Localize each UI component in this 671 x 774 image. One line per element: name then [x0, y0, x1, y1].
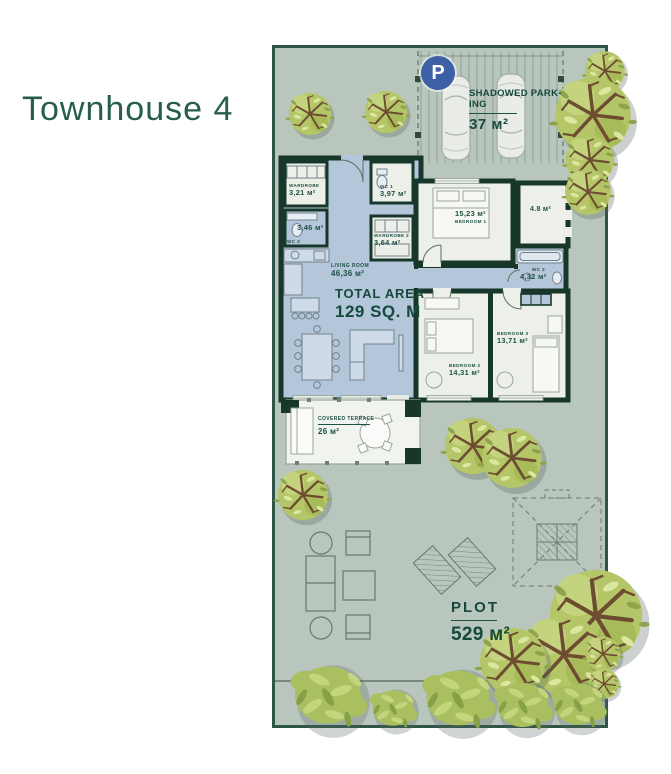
- parking-area-value: 37 м²: [469, 116, 562, 134]
- room-label-wc1: WC 1 3,97 м²: [380, 184, 406, 198]
- room-label-bedroom1: 15,23 м² BEDROOM 1: [455, 210, 486, 224]
- page-title: Townhouse 4: [22, 90, 233, 129]
- room-label-living: LIVING ROOM 46,36 м²: [331, 263, 369, 279]
- room-label-balcony: 4.8 м²: [530, 206, 551, 214]
- garden-lounge-set: [306, 531, 375, 639]
- room-label-wc2-area: 4,32 м²: [520, 273, 546, 282]
- room-label-terrace: COVERED TERRACE 26 м²: [318, 416, 374, 437]
- floor-plan-graphics: [272, 45, 614, 734]
- divider: [451, 620, 497, 621]
- divider: [318, 424, 370, 425]
- room-label-bedroom2: BEDROOM 2 14,31 м²: [449, 363, 480, 377]
- parking-label: SHADOWED PARK- ING 37 м²: [469, 88, 562, 134]
- room-label-bedroom3: BEDROOM 3 13,71 м²: [497, 331, 528, 345]
- plot-label: PLOT 529 м²: [451, 599, 510, 647]
- parking-icon: P: [421, 56, 455, 90]
- car: [442, 76, 470, 160]
- room-label-wardrobe2: WARDROBE 2 3,64 м²: [374, 233, 409, 247]
- room-label-wardrobe: WARDROBE 3,21 м²: [289, 183, 320, 197]
- divider: [469, 113, 517, 114]
- parking-label-line1: SHADOWED PARK-: [469, 88, 562, 99]
- room-label-wc3-name: WC 3: [287, 239, 300, 245]
- page: { "title": "Townhouse 4", "parking": { "…: [0, 0, 671, 774]
- plot-area: P SHADOWED PARK- ING 37 м² WARDROBE 3,21…: [272, 45, 608, 728]
- parking-label-line2: ING: [469, 99, 562, 110]
- room-label-wc3-area: 3,46 м²: [297, 224, 323, 233]
- total-area-label: TOTAL AREA 129 SQ. M: [335, 286, 425, 322]
